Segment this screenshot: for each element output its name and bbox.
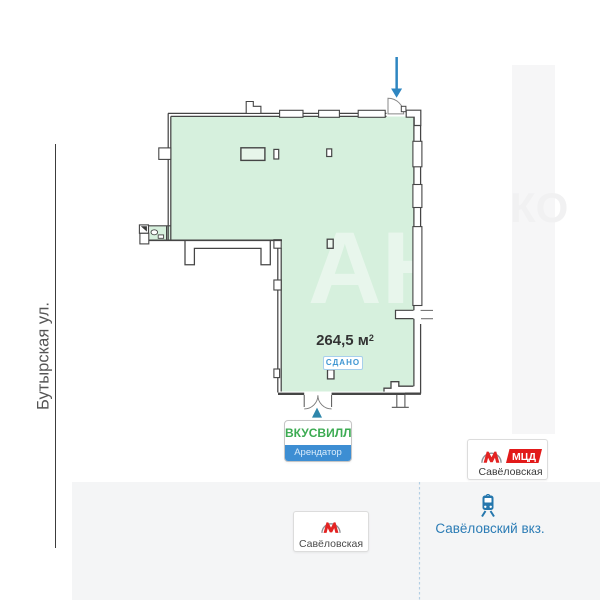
svg-text:МЦД: МЦД xyxy=(512,451,536,463)
svg-text:АН: АН xyxy=(308,211,455,325)
